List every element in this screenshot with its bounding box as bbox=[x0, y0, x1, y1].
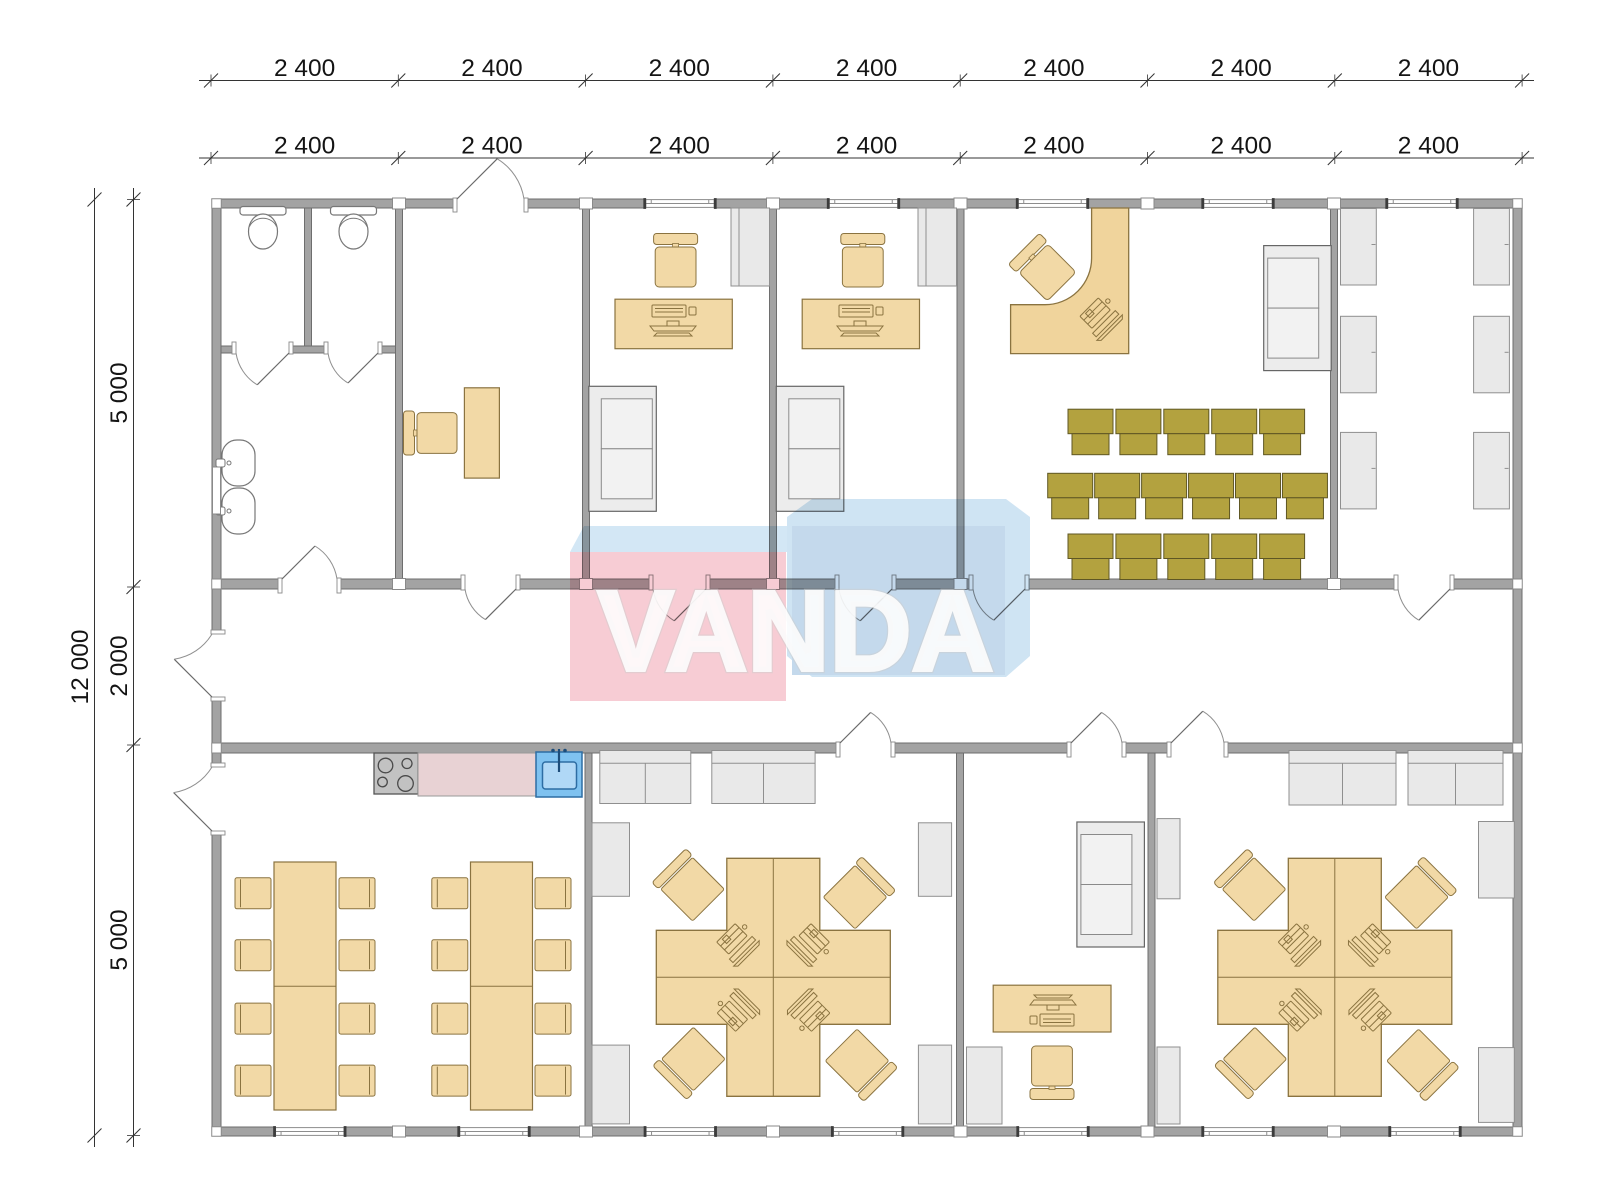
svg-text:2 400: 2 400 bbox=[649, 55, 710, 82]
svg-text:2 400: 2 400 bbox=[461, 55, 522, 82]
svg-text:5 000: 5 000 bbox=[106, 909, 133, 970]
svg-text:2 400: 2 400 bbox=[836, 133, 897, 160]
svg-text:2 400: 2 400 bbox=[1023, 133, 1084, 160]
svg-text:2 400: 2 400 bbox=[274, 55, 335, 82]
svg-text:2 400: 2 400 bbox=[1210, 133, 1271, 160]
svg-text:2 400: 2 400 bbox=[649, 133, 710, 160]
svg-text:2 400: 2 400 bbox=[1210, 55, 1271, 82]
svg-text:2 000: 2 000 bbox=[106, 635, 133, 696]
svg-text:2 400: 2 400 bbox=[1398, 133, 1459, 160]
svg-text:5 000: 5 000 bbox=[106, 362, 133, 423]
svg-text:2 400: 2 400 bbox=[461, 133, 522, 160]
svg-text:2 400: 2 400 bbox=[836, 55, 897, 82]
svg-text:2 400: 2 400 bbox=[1398, 55, 1459, 82]
svg-text:2 400: 2 400 bbox=[274, 133, 335, 160]
svg-text:2 400: 2 400 bbox=[1023, 55, 1084, 82]
svg-text:12 000: 12 000 bbox=[67, 630, 94, 705]
svg-text:VANDA: VANDA bbox=[598, 568, 994, 694]
